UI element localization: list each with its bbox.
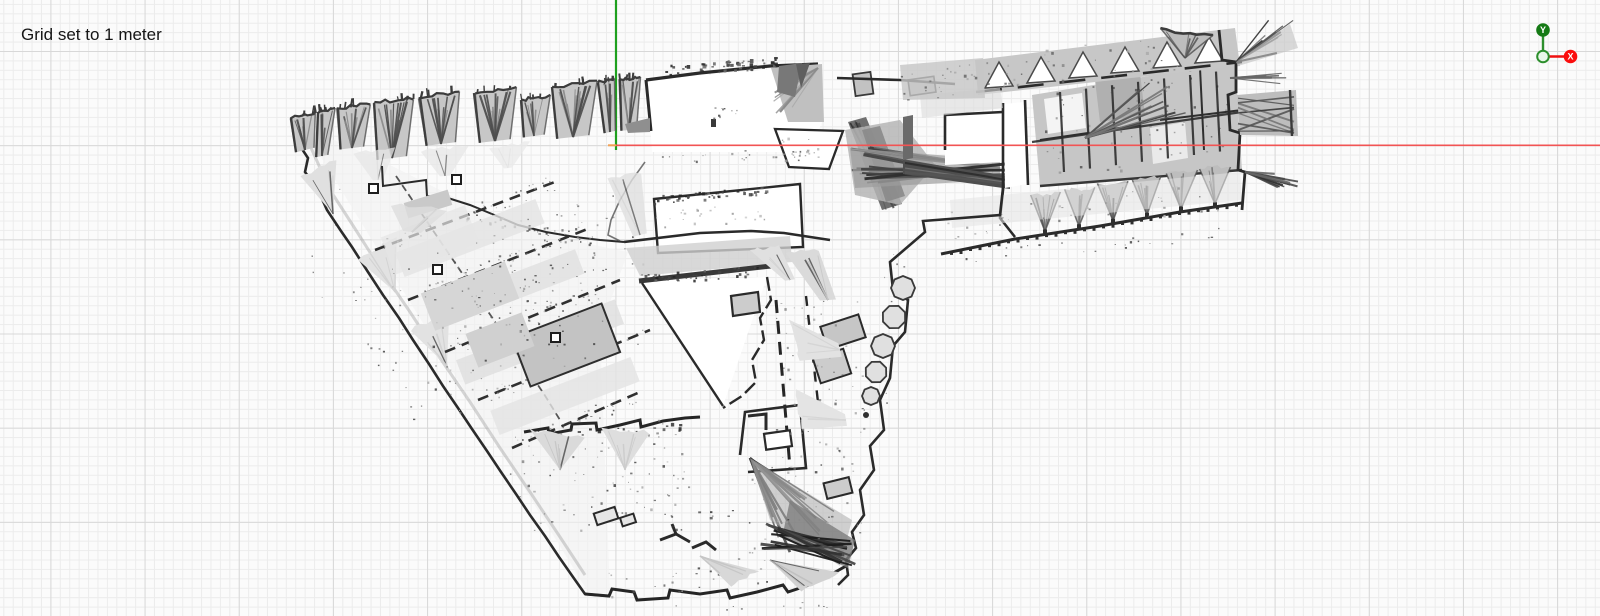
svg-text:Grid set to 1 meter: Grid set to 1 meter [21, 25, 162, 44]
svg-text:Y: Y [1540, 25, 1546, 35]
svg-text:X: X [1567, 52, 1573, 62]
